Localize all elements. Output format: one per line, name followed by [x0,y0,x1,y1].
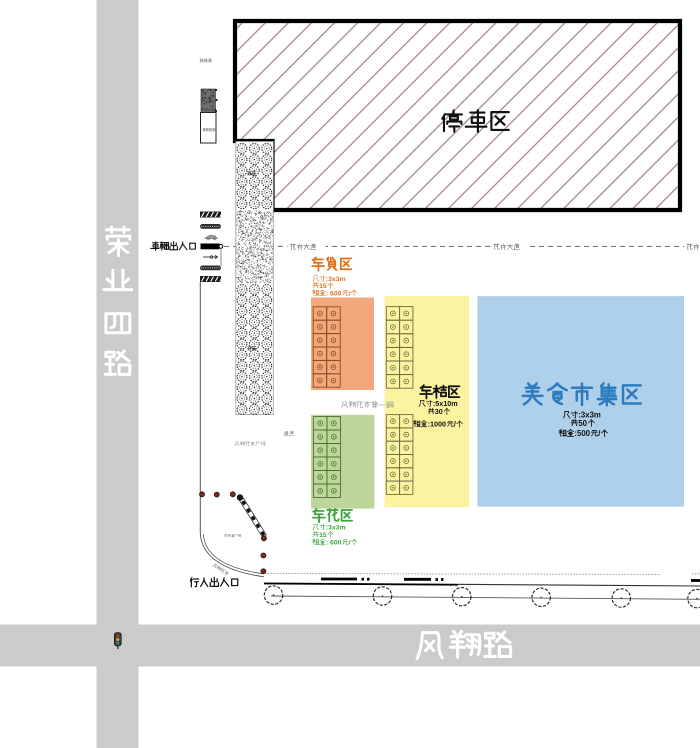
svg-text:/: / [349,540,351,547]
svg-text:: 600: : 600 [326,540,342,547]
svg-text:50: 50 [578,419,587,428]
svg-text:/: / [454,420,456,429]
svg-text:: 600: : 600 [326,290,342,297]
svg-text:15: 15 [319,532,327,539]
svg-text::3x3m: :3x3m [326,276,346,283]
svg-text::3x3m: :3x3m [326,525,346,532]
svg-text::500: :500 [574,429,590,438]
svg-text:/: / [349,290,351,297]
svg-text:30: 30 [435,407,443,416]
svg-text:15: 15 [319,283,327,290]
svg-text::1000: :1000 [428,420,446,429]
